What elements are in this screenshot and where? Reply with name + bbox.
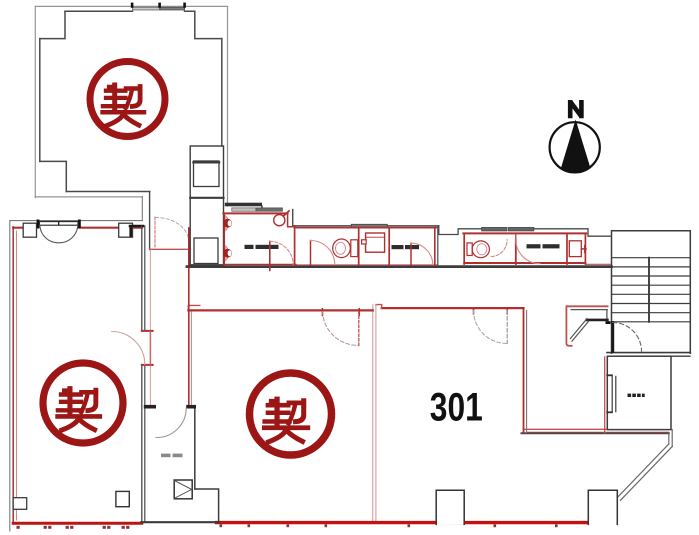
svg-text:301: 301 [430,385,483,429]
